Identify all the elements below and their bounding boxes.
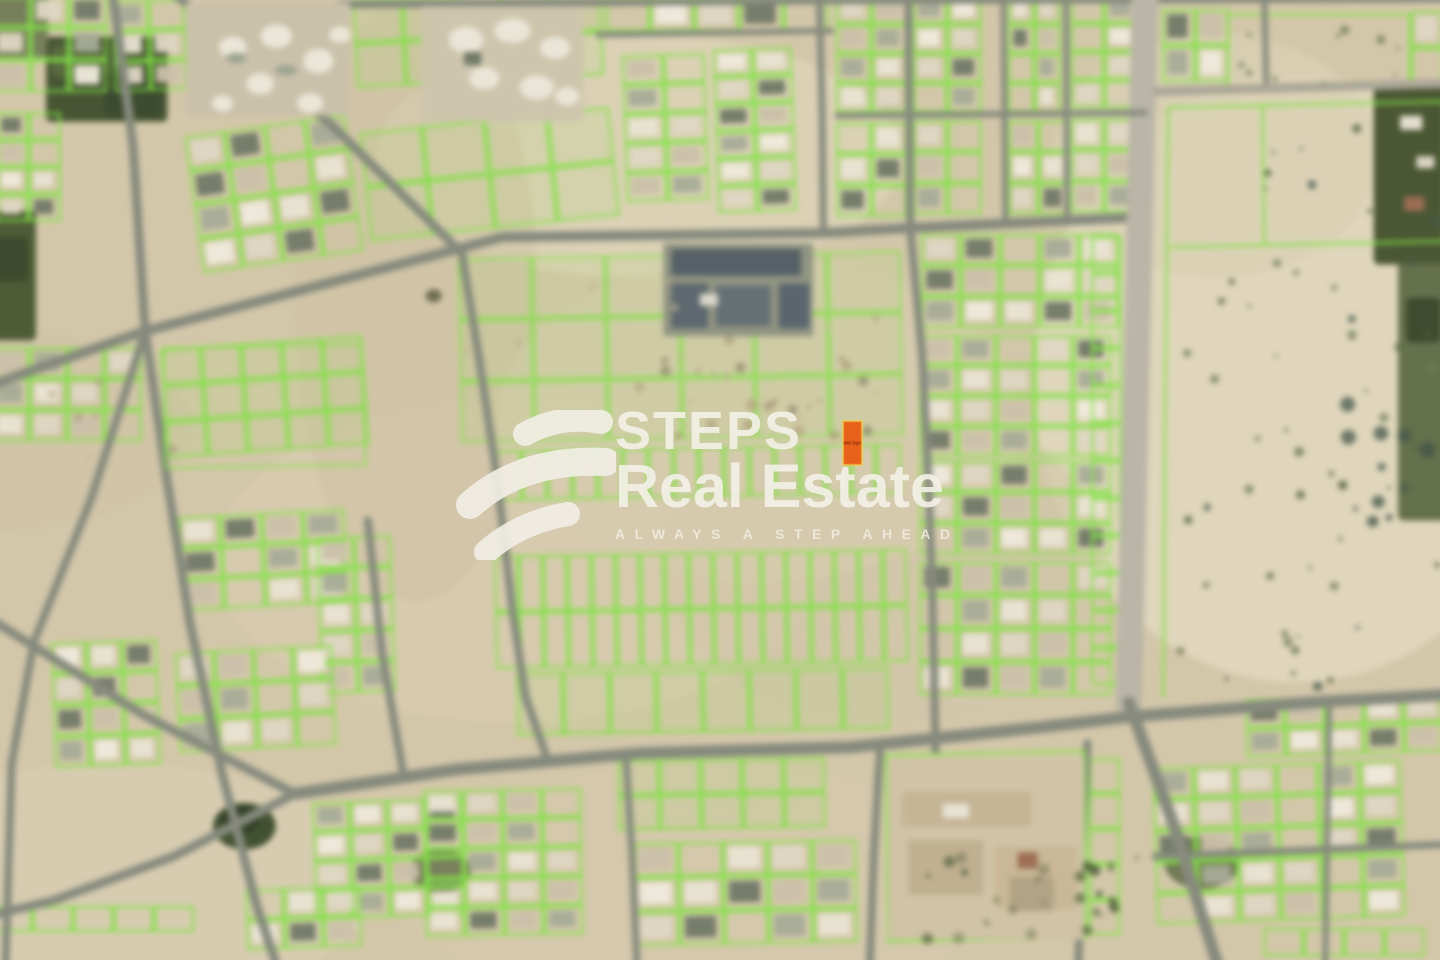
steps-logo-icon: [456, 410, 616, 565]
logo-tagline: ALWAYS A STEP AHEAD: [615, 526, 960, 542]
satellite-plot-map: 900 Sqm STEPS Real Estate ALWAYS A STEP …: [0, 0, 1440, 960]
watermark-text: STEPS Real Estate ALWAYS A STEP AHEAD: [615, 406, 960, 542]
logo-title: STEPS: [615, 406, 960, 456]
watermark-logo: STEPS Real Estate ALWAYS A STEP AHEAD: [450, 400, 1090, 575]
logo-subtitle: Real Estate: [615, 459, 960, 514]
